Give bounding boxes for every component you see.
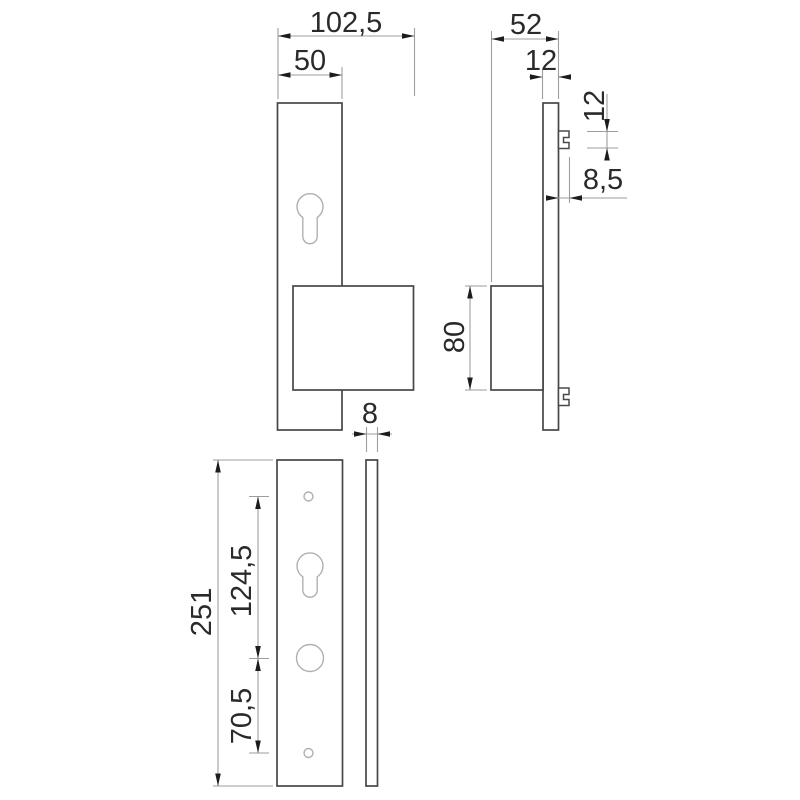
dim-label-upper-hole-spacing: 124,5 [226, 545, 258, 618]
screw-hole-bottom [304, 749, 313, 758]
fixing-clip-bottom [559, 388, 570, 406]
dim-back-plate-thickness: 8 [352, 398, 392, 452]
side-view [491, 103, 569, 430]
dim-handle-block-height: 80 [439, 286, 487, 390]
dim-label-overall-width: 102,5 [310, 7, 383, 39]
dim-label-plate-thickness: 12 [525, 45, 557, 77]
back-plate [277, 460, 343, 786]
dim-label-handle-block-height: 80 [439, 321, 471, 353]
dim-label-overall-depth: 52 [510, 9, 542, 41]
side-plate [543, 103, 559, 430]
technical-drawing: 102,5 50 52 12 12 8,5 [0, 0, 800, 800]
front-view-top [278, 103, 414, 430]
dim-label-clip-height: 12 [579, 90, 611, 122]
front-view-back-plate [277, 460, 343, 786]
handle-block-front [293, 286, 414, 390]
dim-upper-hole-spacing: 124,5 [226, 497, 269, 659]
dim-plate-width: 50 [278, 45, 342, 99]
dim-label-back-plate-height: 251 [186, 588, 218, 636]
handle-spindle-hole [297, 645, 324, 672]
dim-clip-height: 12 [579, 90, 618, 159]
handle-block-side [491, 286, 543, 390]
dim-label-back-plate-thickness: 8 [362, 398, 378, 430]
fixing-clip-top [559, 131, 570, 149]
dim-label-clip-protrusion: 8,5 [583, 164, 623, 196]
dim-label-plate-width: 50 [294, 45, 326, 77]
dim-plate-thickness: 12 [525, 45, 571, 99]
dim-lower-hole-spacing: 70,5 [226, 659, 269, 754]
back-plate-side-profile [366, 460, 378, 786]
dim-label-lower-hole-spacing: 70,5 [226, 688, 258, 744]
screw-hole-top [304, 492, 313, 501]
drawing-canvas: 102,5 50 52 12 12 8,5 [0, 0, 800, 800]
